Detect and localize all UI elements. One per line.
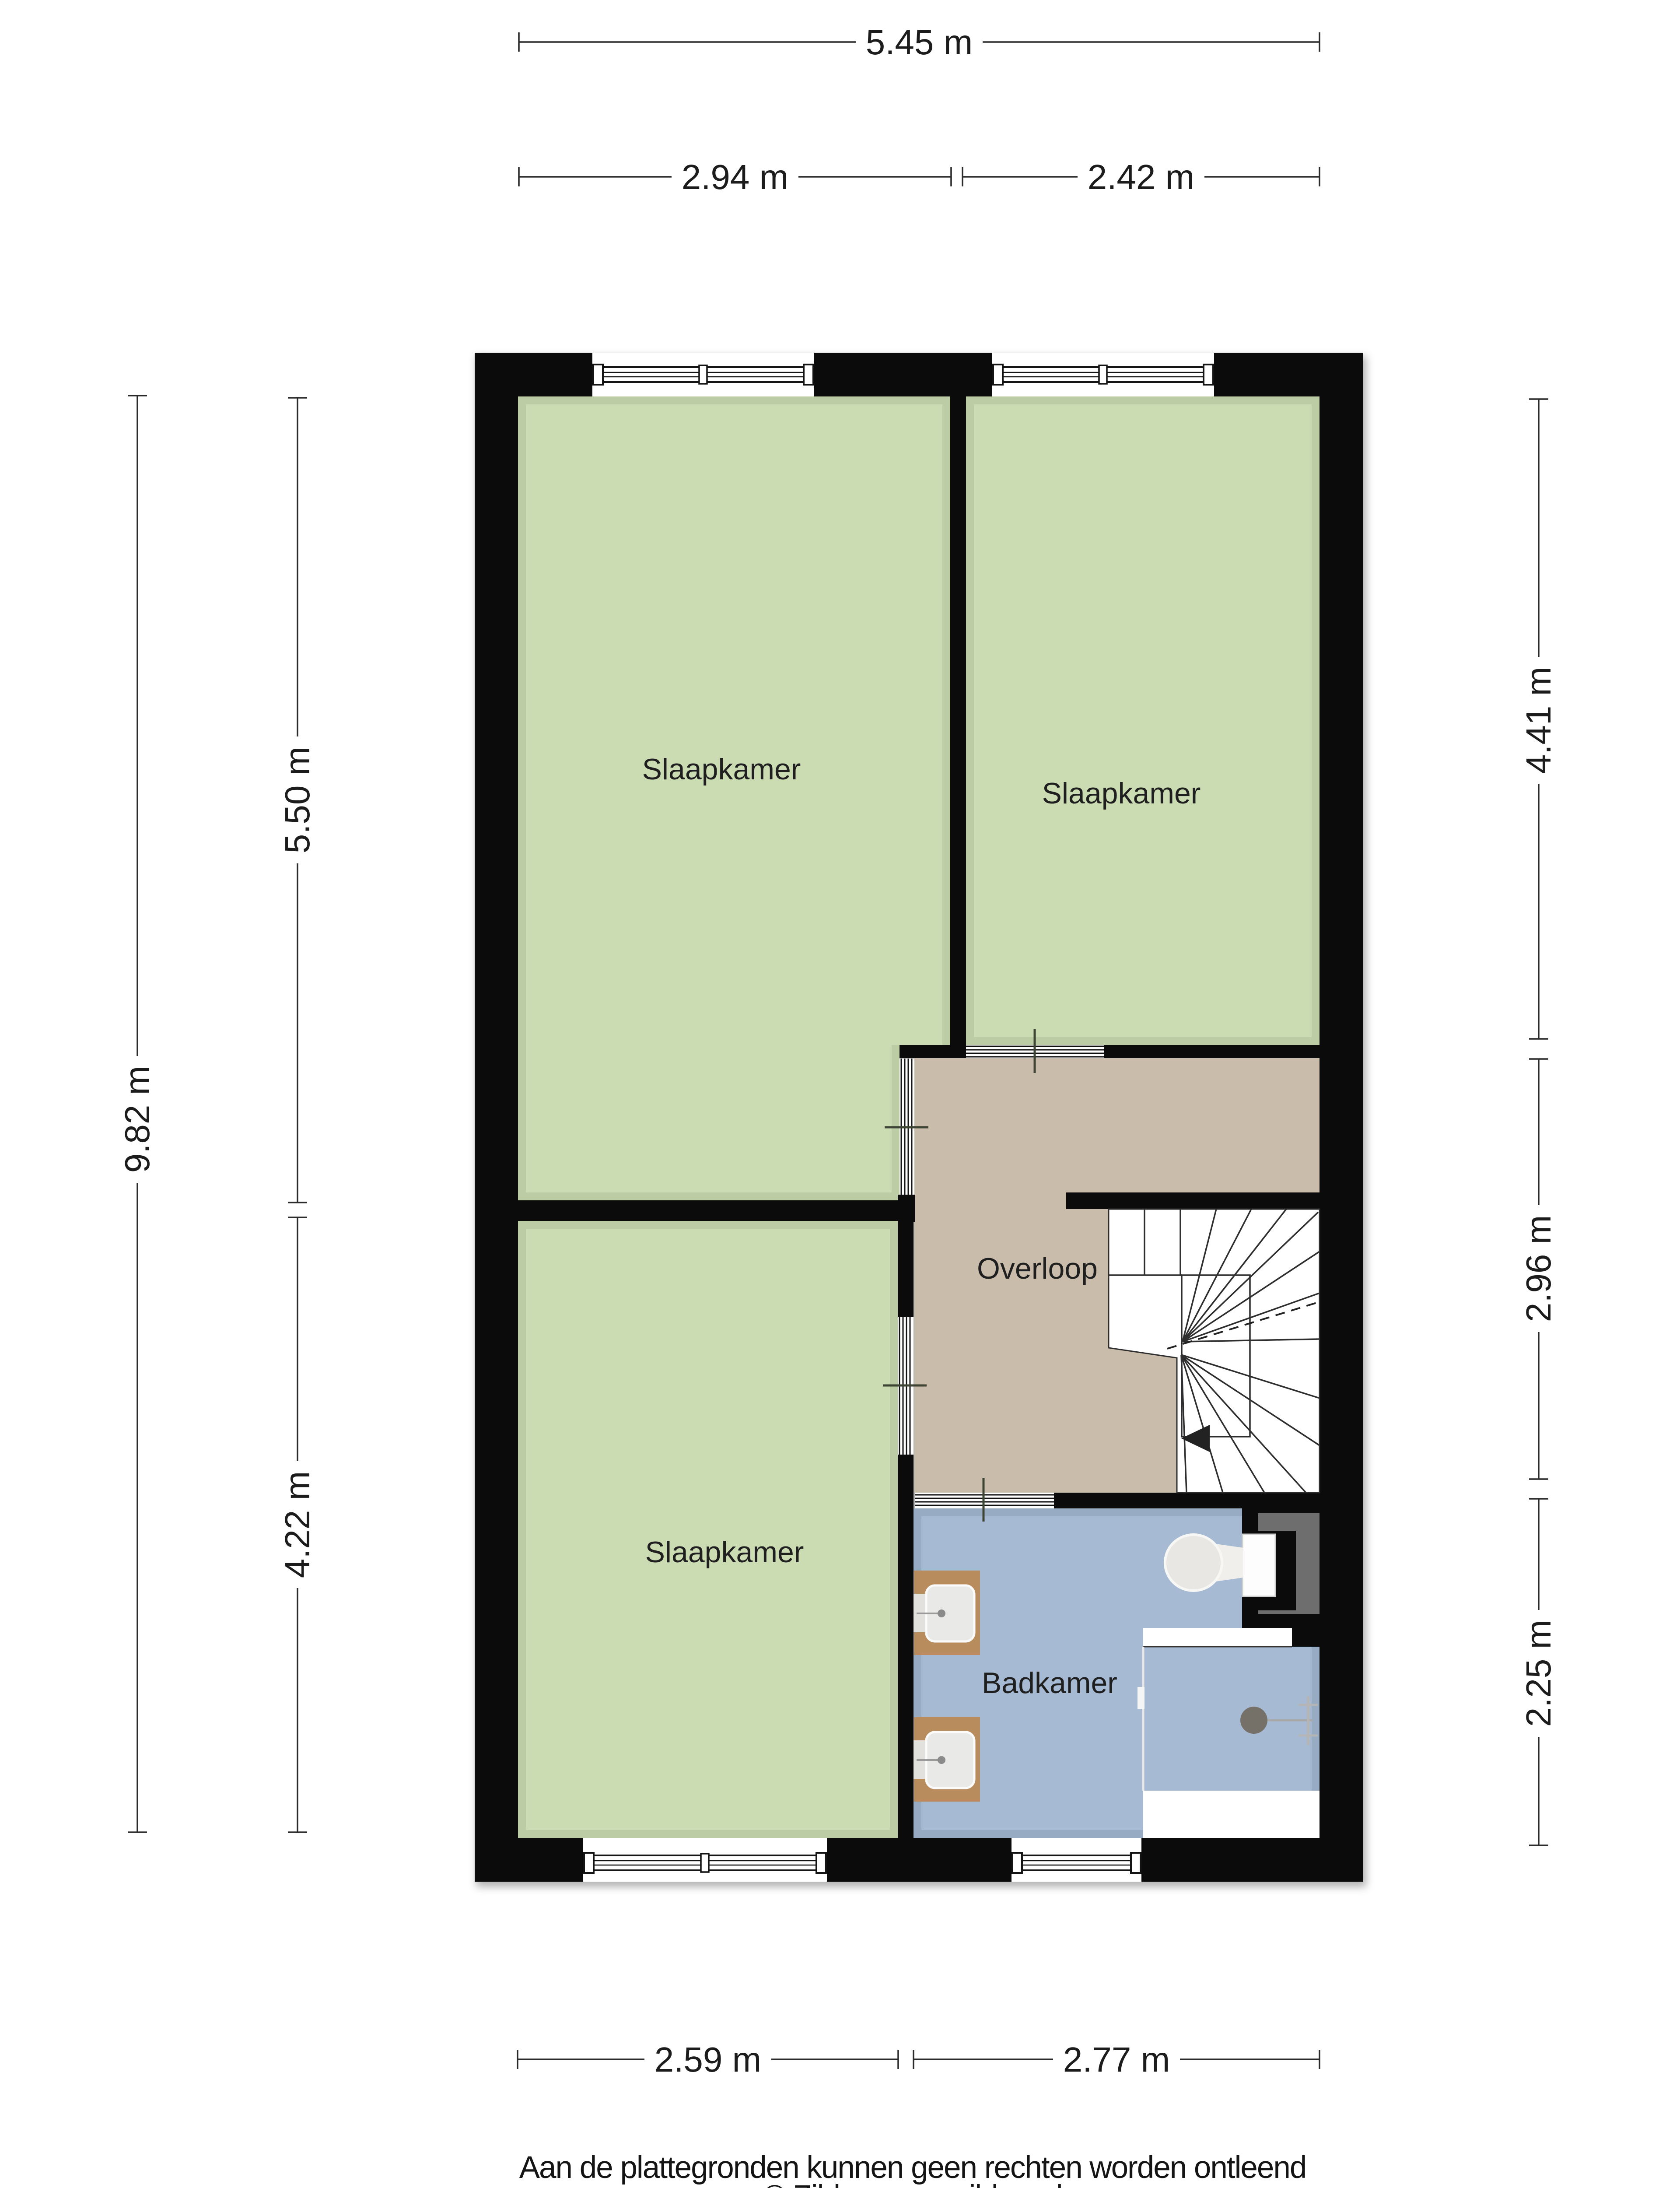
svg-text:2.77 m: 2.77 m	[1063, 2040, 1170, 2079]
svg-text:4.41 m: 4.41 m	[1519, 667, 1558, 774]
svg-text:5.45 m: 5.45 m	[866, 23, 973, 62]
svg-text:Slaapkamer: Slaapkamer	[1042, 777, 1201, 810]
svg-text:Slaapkamer: Slaapkamer	[645, 1536, 804, 1569]
svg-text:2.25 m: 2.25 m	[1519, 1620, 1558, 1727]
svg-text:Overloop: Overloop	[977, 1252, 1098, 1285]
svg-text:2.59 m: 2.59 m	[654, 2040, 762, 2079]
svg-text:2.96 m: 2.96 m	[1519, 1215, 1558, 1322]
svg-text:9.82 m: 9.82 m	[118, 1066, 157, 1173]
svg-text:2.42 m: 2.42 m	[1088, 158, 1195, 196]
svg-text:© Zibber www.zibber.nl: © Zibber www.zibber.nl	[763, 2179, 1062, 2188]
svg-text:5.50 m: 5.50 m	[278, 747, 317, 854]
svg-text:2.94 m: 2.94 m	[682, 158, 789, 196]
svg-text:Slaapkamer: Slaapkamer	[642, 753, 801, 786]
svg-text:Badkamer: Badkamer	[982, 1666, 1117, 1700]
svg-text:4.22 m: 4.22 m	[278, 1471, 317, 1578]
